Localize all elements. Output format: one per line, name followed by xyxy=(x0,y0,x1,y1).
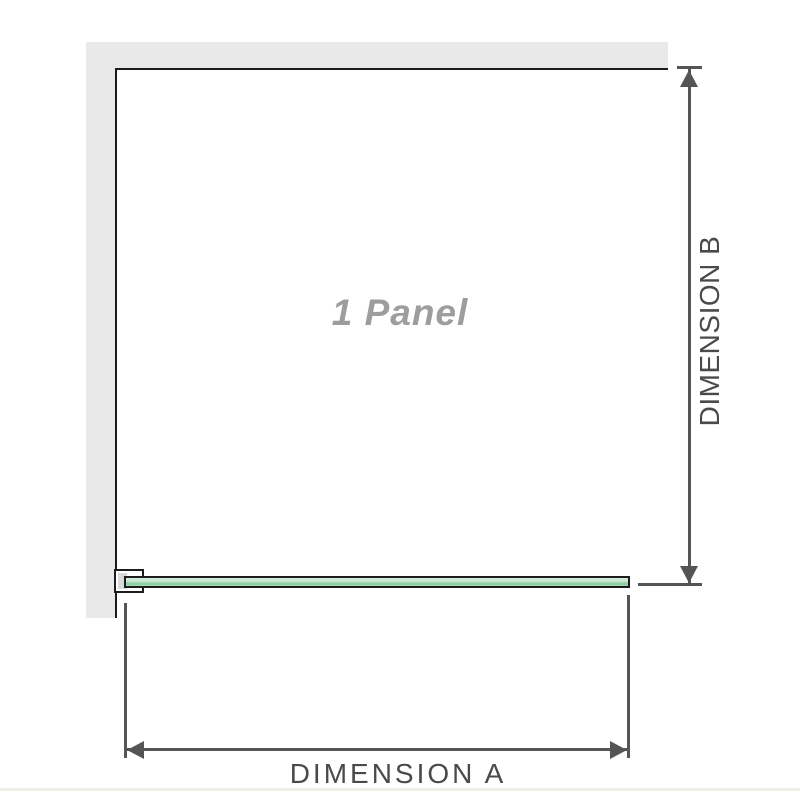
wall-left-band xyxy=(86,42,115,618)
diagram-canvas: 1 Panel DIMENSION B DIMENSION A xyxy=(0,0,800,800)
panel-count-label: 1 Panel xyxy=(332,292,469,334)
arrow-down-icon xyxy=(680,566,698,583)
dimension-a-line xyxy=(127,748,627,751)
dimension-a-label: DIMENSION A xyxy=(290,758,507,790)
enclosure-left-line xyxy=(115,68,117,618)
dimension-a-left-extension xyxy=(124,603,127,758)
dimension-b-bottom-cap xyxy=(638,583,702,586)
wall-top-band xyxy=(86,42,668,68)
arrow-left-icon xyxy=(127,741,144,759)
dimension-b-line xyxy=(688,69,691,583)
footer-divider xyxy=(0,788,800,791)
glass-panel-bar xyxy=(124,576,630,588)
dimension-a-right-extension xyxy=(627,595,630,758)
arrow-up-icon xyxy=(680,70,698,87)
arrow-right-icon xyxy=(610,741,627,759)
dimension-b-label: DIMENSION B xyxy=(694,236,726,427)
enclosure-top-line xyxy=(115,68,668,70)
